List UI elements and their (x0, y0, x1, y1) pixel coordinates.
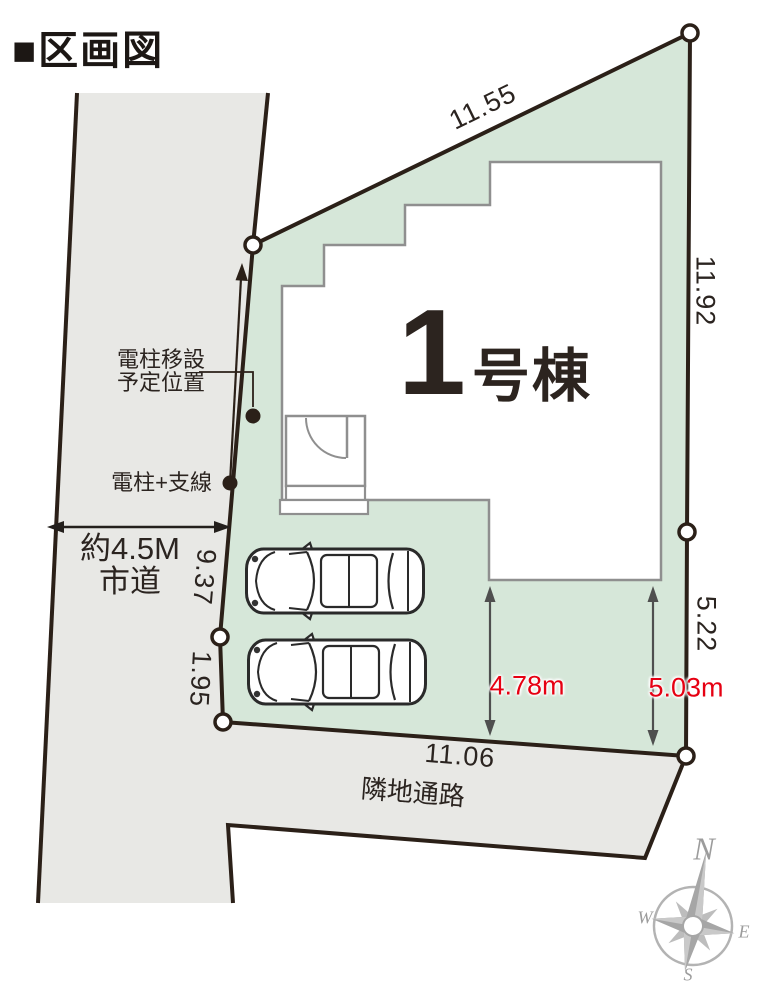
compass-east-label: E (739, 922, 750, 943)
dim-right-lower: 5.22 (691, 596, 722, 653)
compass-west-label: W (638, 908, 653, 929)
page-title: ■区画図 (12, 18, 164, 76)
setback-dim-left: 4.78m (489, 671, 564, 702)
road-width-text: 約4.5M (55, 533, 205, 566)
dim-bottom: 11.06 (424, 738, 497, 774)
entrance-porch (286, 416, 365, 486)
compass-south-label: S (684, 965, 693, 986)
parked-car-2 (249, 634, 426, 710)
vertex-southwest (215, 714, 231, 730)
parked-car-1 (247, 543, 424, 619)
pole-existing-label: 電柱+支線 (111, 471, 212, 494)
compass-north-label: N (693, 831, 714, 868)
entrance-step-2 (280, 500, 368, 514)
vertex-east-mid (679, 524, 695, 540)
building-number: 1 (398, 296, 466, 408)
road-type-text: 市道 (55, 566, 205, 599)
pole-relocation-label: 電柱移設 予定位置 (117, 348, 205, 395)
building-label: 1 号棟 (398, 296, 592, 408)
vertex-northwest (245, 237, 261, 253)
entrance-step-1 (286, 486, 365, 500)
plot-diagram (0, 0, 762, 997)
pole-relocation-dot (246, 409, 261, 424)
vertex-west-mid (212, 629, 228, 645)
building-suffix: 号棟 (472, 348, 592, 406)
vertex-southeast (678, 748, 694, 764)
road-label: 約4.5M 市道 (55, 533, 205, 598)
dim-left-lower: 1.95 (183, 650, 217, 708)
dim-right-upper: 11.92 (690, 256, 721, 327)
plot-map-page: ■区画図 1 号棟 11.55 11.92 5.22 9.37 1.95 11.… (0, 0, 762, 997)
setback-dim-right: 5.03m (648, 673, 723, 704)
vertex-northeast (682, 25, 698, 41)
